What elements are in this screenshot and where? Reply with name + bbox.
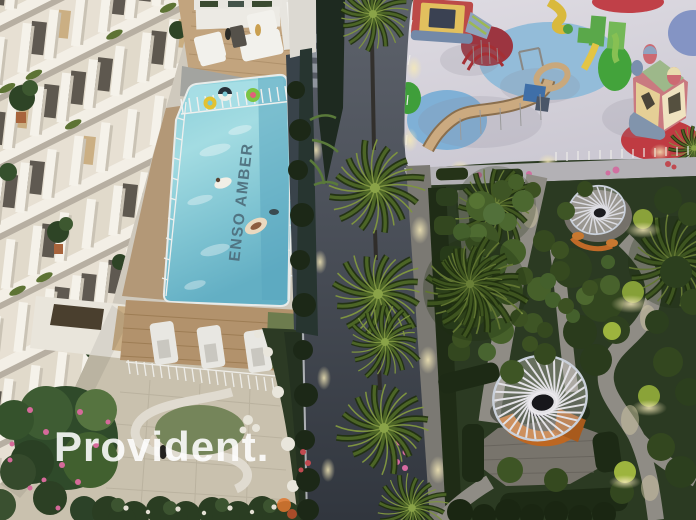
svg-text:Provident.: Provident.: [54, 423, 269, 470]
